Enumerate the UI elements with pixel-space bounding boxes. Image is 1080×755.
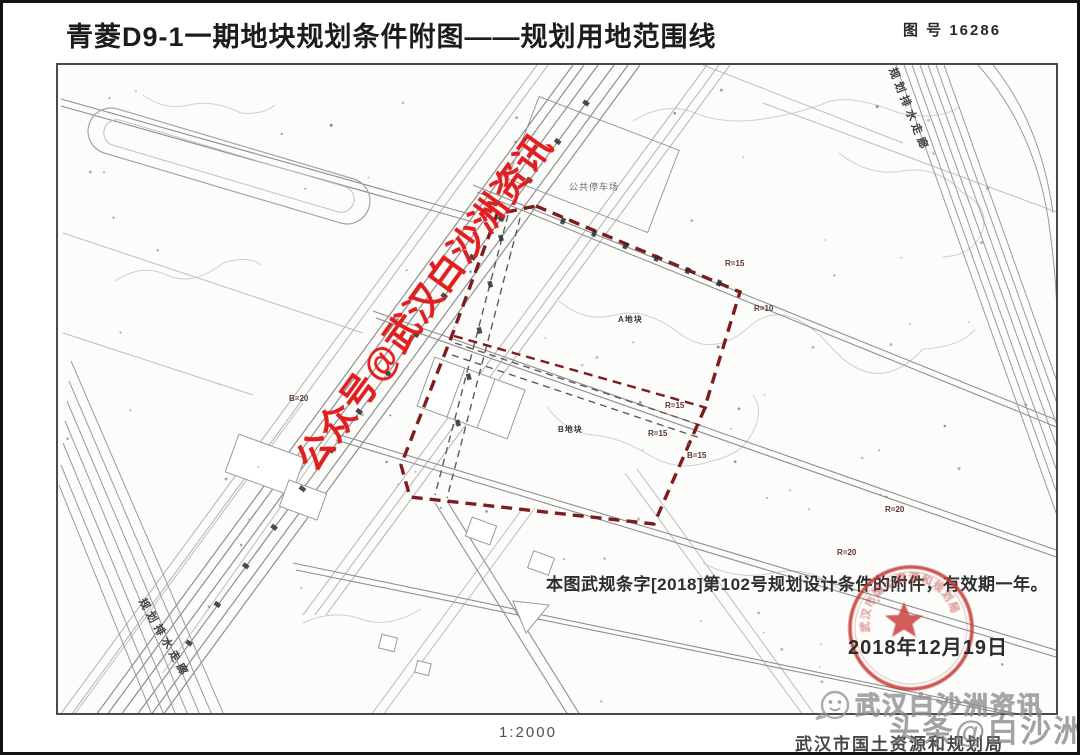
survey-dot bbox=[119, 331, 121, 333]
survey-dot bbox=[440, 507, 442, 509]
survey-dot bbox=[415, 471, 417, 473]
radius-label: B=15 bbox=[687, 451, 706, 460]
survey-dot bbox=[642, 449, 644, 451]
survey-dot bbox=[515, 116, 518, 119]
survey-dot bbox=[405, 269, 407, 271]
survey-dot bbox=[944, 425, 947, 428]
survey-dot bbox=[757, 611, 760, 614]
survey-dot bbox=[876, 105, 879, 108]
survey-dot bbox=[389, 414, 391, 416]
stamp-date: 2018年12月19日 bbox=[848, 631, 1008, 660]
survey-dot bbox=[248, 519, 250, 521]
radius-label: R=20 bbox=[885, 505, 904, 514]
survey-dot bbox=[833, 274, 835, 276]
radius-label: R=15 bbox=[648, 429, 667, 438]
survey-dot bbox=[603, 557, 606, 560]
survey-dot bbox=[108, 97, 110, 99]
scanned-planning-map-page: 青菱D9-1一期地块规划条件附图——规划用地范围线 图 号 16286 bbox=[0, 0, 1080, 755]
survey-dot bbox=[135, 90, 137, 92]
survey-dot bbox=[932, 152, 935, 155]
drawing-number-value: 16286 bbox=[949, 22, 1001, 39]
survey-dot bbox=[600, 700, 602, 702]
survey-dot bbox=[885, 496, 887, 498]
survey-dot bbox=[957, 467, 960, 470]
survey-dot bbox=[300, 587, 302, 589]
survey-dot bbox=[824, 239, 826, 241]
road-name-tick bbox=[685, 267, 691, 275]
survey-dot bbox=[89, 171, 92, 174]
survey-dot bbox=[808, 508, 810, 510]
survey-dot bbox=[980, 241, 983, 244]
survey-dot bbox=[690, 219, 693, 222]
survey-dot bbox=[639, 401, 642, 404]
survey-dot bbox=[66, 437, 68, 439]
survey-dot bbox=[595, 356, 598, 359]
toutiao-watermark: 头条@白沙洲 bbox=[889, 706, 1080, 751]
survey-dot bbox=[900, 257, 902, 259]
radius-label: R=15 bbox=[725, 259, 744, 268]
survey-dot bbox=[737, 407, 740, 410]
drain-corridor-sw bbox=[59, 361, 224, 715]
survey-dot bbox=[927, 119, 930, 122]
road-loop bbox=[82, 102, 375, 229]
survey-dot bbox=[397, 483, 399, 485]
survey-dot bbox=[986, 187, 989, 190]
survey-dot bbox=[766, 497, 768, 499]
survey-dot bbox=[402, 101, 405, 104]
survey-dot bbox=[673, 112, 676, 115]
survey-dot bbox=[968, 321, 970, 323]
survey-dot bbox=[1025, 403, 1028, 406]
survey-dot bbox=[454, 326, 456, 328]
survey-dot bbox=[240, 544, 243, 547]
drawing-number: 图 号 16286 bbox=[903, 19, 1001, 40]
survey-dot bbox=[879, 493, 881, 495]
survey-dot bbox=[509, 251, 512, 254]
survey-dot bbox=[734, 460, 737, 463]
radius-label: B=20 bbox=[289, 394, 308, 403]
survey-dot bbox=[763, 632, 765, 634]
survey-dot bbox=[304, 188, 306, 190]
drawing-number-label: 图 号 bbox=[903, 22, 943, 39]
plot-a-label: A地块 bbox=[618, 314, 643, 325]
survey-dot bbox=[789, 489, 791, 491]
survey-dot bbox=[581, 364, 583, 366]
survey-dot bbox=[485, 510, 488, 513]
survey-dot bbox=[281, 133, 283, 135]
survey-dot bbox=[129, 409, 131, 411]
survey-dot bbox=[743, 156, 745, 158]
public-parking-label: 公共停车场 bbox=[569, 180, 619, 193]
road-name-tick bbox=[487, 281, 493, 288]
survey-dot bbox=[812, 346, 815, 349]
radius-label: R=15 bbox=[665, 401, 684, 410]
survey-dot bbox=[637, 518, 640, 521]
survey-dot bbox=[112, 217, 114, 219]
survey-dot bbox=[225, 478, 228, 481]
survey-dot bbox=[157, 249, 159, 251]
survey-dot bbox=[544, 337, 546, 339]
survey-dot bbox=[385, 461, 388, 464]
survey-dot bbox=[368, 177, 370, 179]
survey-dot bbox=[717, 345, 720, 348]
brand-logo-icon bbox=[811, 687, 853, 727]
survey-dot bbox=[330, 124, 333, 127]
survey-dot bbox=[764, 394, 766, 396]
plot-b-label: B地块 bbox=[558, 424, 583, 435]
survey-dot bbox=[909, 323, 911, 325]
survey-dot bbox=[889, 343, 892, 346]
contour-lines bbox=[115, 95, 984, 623]
survey-dot bbox=[103, 171, 106, 174]
survey-dot bbox=[720, 89, 723, 92]
road-name-tick bbox=[560, 217, 566, 225]
radius-label: R=10 bbox=[754, 304, 773, 313]
survey-dot bbox=[257, 466, 259, 468]
survey-dot bbox=[730, 428, 732, 430]
survey-dot bbox=[861, 457, 864, 460]
survey-dot bbox=[780, 648, 783, 651]
survey-dot bbox=[687, 442, 690, 445]
survey-dot bbox=[878, 449, 880, 451]
survey-dot bbox=[632, 341, 634, 343]
survey-dot bbox=[563, 558, 565, 560]
page-title: 青菱D9-1一期地块规划条件附图——规划用地范围线 bbox=[66, 15, 717, 54]
map-scale: 1:2000 bbox=[458, 724, 598, 741]
survey-dot bbox=[208, 605, 211, 608]
survey-dot bbox=[700, 620, 702, 622]
